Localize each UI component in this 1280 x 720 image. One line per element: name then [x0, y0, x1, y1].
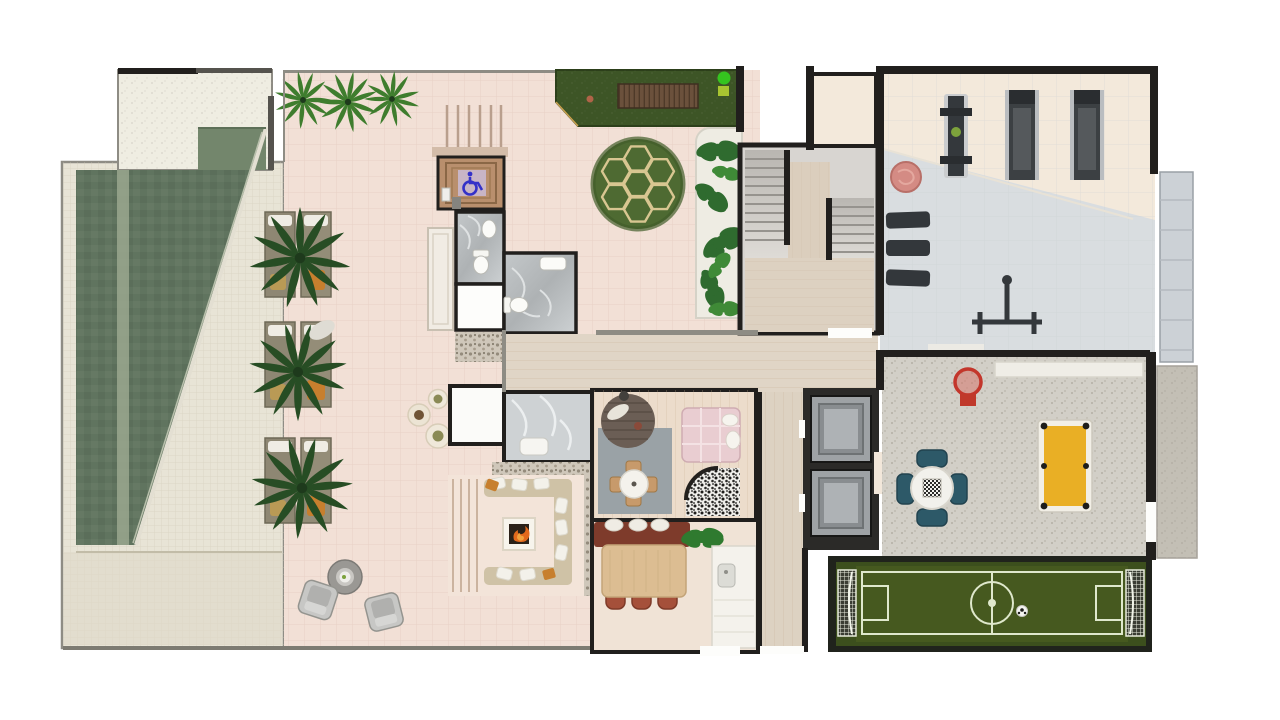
- bathroom-lobby: [456, 284, 504, 330]
- fire-pit: [503, 518, 535, 550]
- treadmill: [1005, 90, 1039, 180]
- billiard-table: [1038, 420, 1092, 512]
- kitchen-sink: [718, 564, 735, 587]
- soccer-goal: [1126, 570, 1144, 636]
- wall-bench: [995, 362, 1143, 377]
- kitchen-counter: [712, 546, 756, 648]
- storage-room: [450, 386, 504, 444]
- soccer-goal: [838, 570, 856, 636]
- dining-kitchen: [592, 519, 760, 656]
- garden-spot-square: [718, 86, 729, 96]
- pebble-path: [455, 332, 504, 362]
- bench-locker: [428, 228, 453, 330]
- floorplan-stage: [0, 0, 1280, 720]
- balcony-strips: [1157, 172, 1197, 558]
- stair-door-opening: [828, 328, 872, 338]
- elevator-bank: [799, 388, 884, 550]
- armchair: [363, 591, 404, 632]
- dining-table: [602, 545, 686, 597]
- gym: [880, 74, 1155, 352]
- accessible-wc: [438, 157, 504, 209]
- wheelchair-accessible-icon: [458, 170, 486, 196]
- door-opening: [700, 646, 740, 656]
- shower-bench: [520, 438, 548, 455]
- weight-machine: [940, 94, 972, 178]
- soccer-field: [828, 556, 1152, 652]
- timber-deck-bench: [618, 84, 698, 108]
- soccer-ball: [1017, 606, 1028, 617]
- playroom: [592, 390, 756, 520]
- stair-lobby: [812, 74, 876, 146]
- bathroom-1: [456, 212, 504, 284]
- games-room: [882, 356, 1150, 556]
- roof-garden: [556, 70, 738, 126]
- firepit-lounge: [448, 462, 600, 596]
- exercise-mats: [886, 211, 931, 287]
- elevator-car: [811, 470, 871, 536]
- round-pouf: [891, 162, 921, 192]
- garden-spot-light: [718, 72, 731, 85]
- daybed: [682, 408, 740, 462]
- bathroom-2: [504, 253, 576, 333]
- hedge-feature: [593, 139, 683, 229]
- shower-room: [504, 392, 592, 462]
- elevator-car: [811, 396, 871, 462]
- stair-core: [740, 145, 878, 338]
- floorplan-svg: [0, 0, 1280, 720]
